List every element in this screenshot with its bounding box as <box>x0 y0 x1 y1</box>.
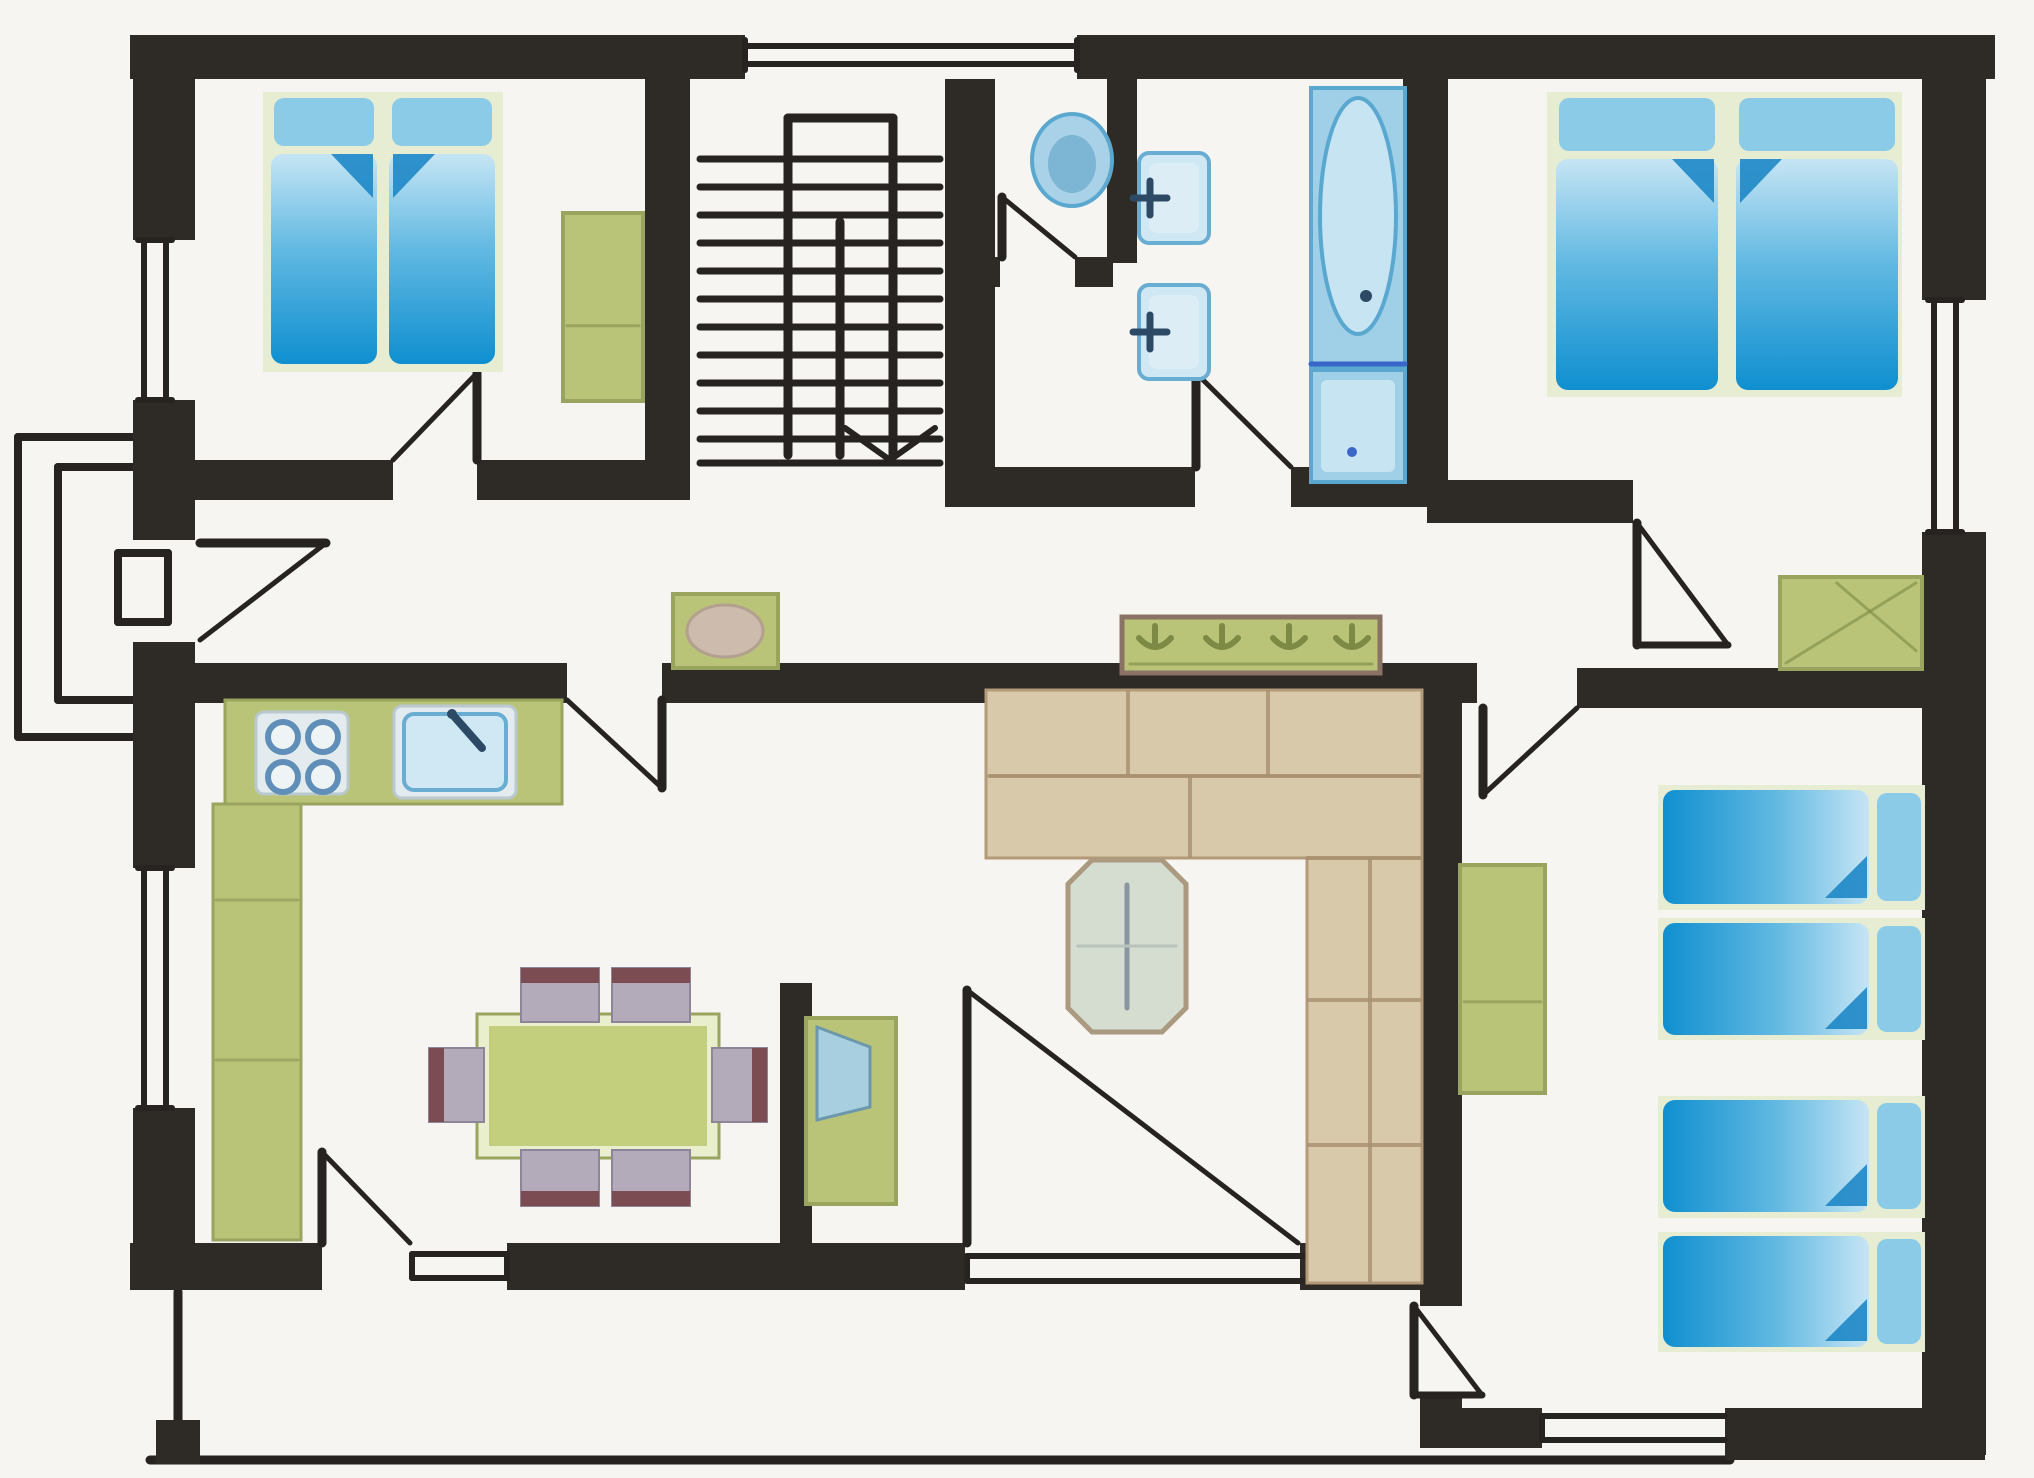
stove-burner-icon <box>308 722 338 752</box>
dining-chair-back <box>752 1048 767 1122</box>
dining-chair-back <box>429 1048 444 1122</box>
bed-bedroom3-1-pillow <box>1877 793 1921 901</box>
floor-plan <box>0 0 2034 1478</box>
bed-bedroom1-left-pillow <box>274 98 374 146</box>
sofa-section <box>1307 858 1422 1283</box>
wall <box>1725 1408 1985 1460</box>
wall <box>1420 1395 1462 1445</box>
wall <box>1420 700 1462 1306</box>
window-stair-top-opening <box>745 35 1077 79</box>
room-terrace <box>195 1290 1420 1458</box>
kitchen-counter-left <box>213 804 301 1240</box>
wall <box>133 35 195 240</box>
stove-burner-icon <box>268 722 298 752</box>
bed-bedroom3-3-pillow <box>1877 1103 1921 1209</box>
wall <box>1075 257 1113 287</box>
wardrobe-bedroom1 <box>563 213 643 401</box>
wall <box>133 663 567 703</box>
sofa-section <box>986 690 1422 776</box>
wall <box>1077 35 1995 79</box>
bed-bedroom2-left <box>1556 159 1718 390</box>
wall <box>130 1243 322 1290</box>
wall <box>133 460 393 500</box>
wall <box>1403 35 1448 507</box>
room-hallway <box>195 500 1922 663</box>
dining-table-top <box>489 1026 707 1146</box>
shower-tray-inner <box>1321 380 1395 472</box>
stove-burner-icon <box>308 762 338 792</box>
wardrobe-bedroom3 <box>1460 865 1545 1093</box>
wall <box>1577 668 1922 708</box>
wall <box>156 1420 200 1464</box>
wall <box>1922 35 1986 300</box>
stove-burner-icon <box>268 762 298 792</box>
bathtub-basin <box>1320 98 1396 334</box>
floor-plan-canvas <box>0 0 2034 1478</box>
hall-table-bowl <box>687 605 763 657</box>
wall <box>1427 480 1633 523</box>
bed-bedroom2-right <box>1736 159 1898 390</box>
bed-bedroom1-right-pillow <box>392 98 492 146</box>
window-kitchen-bottom-opening <box>412 1243 507 1290</box>
dining-chair-back <box>612 1191 690 1206</box>
kitchen-faucet-icon <box>447 709 457 719</box>
toilet-bowl <box>1048 135 1096 193</box>
dining-chair-back <box>521 968 599 983</box>
sofa-section <box>986 776 1422 858</box>
bed-bedroom3-2-pillow <box>1877 926 1921 1032</box>
bathtub-drain <box>1360 290 1372 302</box>
kitchen-sink-basin <box>404 714 506 790</box>
wall <box>1922 532 1986 1455</box>
wall <box>477 460 690 500</box>
wall <box>945 467 1195 507</box>
bed-bedroom2-left-pillow <box>1559 98 1715 151</box>
dining-chair-back <box>612 968 690 983</box>
wall <box>960 257 1000 287</box>
bed-bedroom2-right-pillow <box>1739 98 1895 151</box>
shower-drain <box>1347 447 1357 457</box>
wall <box>507 1243 965 1290</box>
bed-bedroom3-4-pillow <box>1877 1239 1921 1344</box>
wall <box>645 35 690 500</box>
dining-chair-back <box>521 1191 599 1206</box>
